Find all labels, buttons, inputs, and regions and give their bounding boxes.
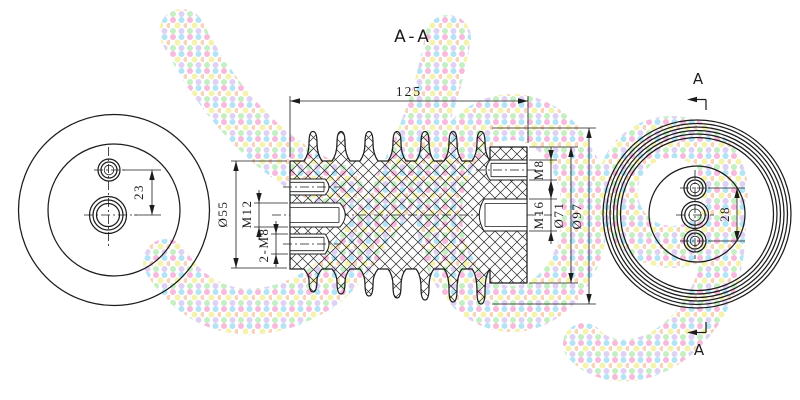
section-title: A-A — [394, 27, 432, 47]
dim-d71-label: Ø71 — [551, 202, 566, 229]
section-letter-top: A — [693, 70, 704, 88]
dim-m16-label: M16 — [531, 200, 546, 229]
dim-left-hole-offset: 23 — [122, 170, 161, 215]
section-mark-top: A — [687, 70, 706, 110]
dim-28-label: 28 — [717, 206, 732, 222]
dim-m8-label: M8 — [531, 159, 546, 180]
engineering-drawing: 23 A-A — [0, 0, 800, 400]
section-letter-bottom: A — [694, 341, 705, 359]
dim-d55-label: Ø55 — [215, 201, 230, 228]
dim-2m8-label: 2-M8 — [256, 228, 271, 263]
dim-125-label: 125 — [396, 84, 422, 99]
dim-d97-label: Ø97 — [569, 203, 584, 230]
dim-m12-label: M12 — [239, 199, 254, 228]
dim-23-label: 23 — [131, 184, 146, 200]
